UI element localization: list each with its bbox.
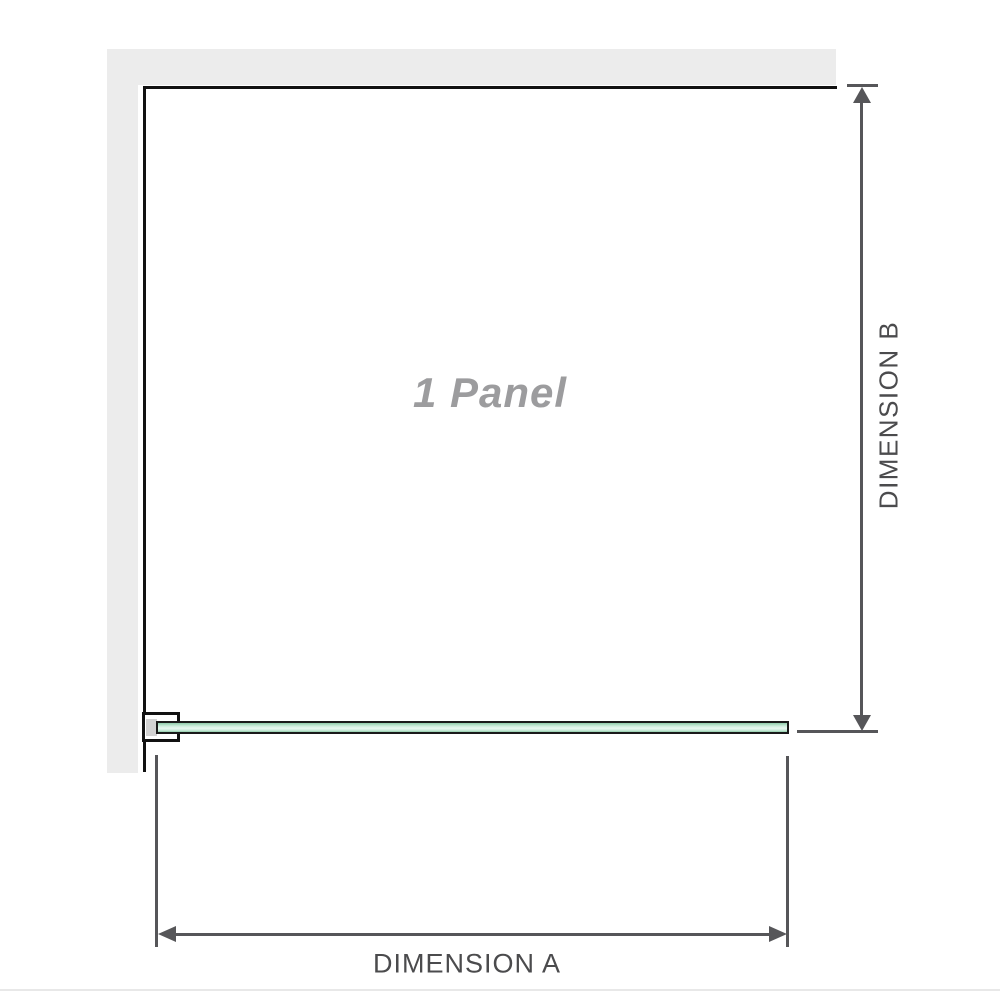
wall-segment-left — [107, 49, 138, 773]
panel-outline-left — [143, 86, 146, 772]
panel-label: 1 Panel — [143, 370, 837, 416]
dimension-a-extension-right — [786, 756, 789, 947]
baseline-divider — [0, 989, 1000, 991]
dimension-a-extension-left — [155, 755, 158, 947]
glass-panel — [156, 721, 789, 734]
dimension-a-label: DIMENSION A — [373, 949, 561, 980]
dimension-diagram: 1 Panel DIMENSION B DIMENSION A — [0, 0, 1000, 1000]
dimension-b-line — [860, 100, 863, 717]
dimension-b-tick-bottom — [797, 730, 878, 733]
dimension-b-label: DIMENSION B — [874, 321, 905, 509]
dimension-a-line — [174, 933, 771, 936]
wall-segment-top — [107, 49, 836, 85]
arrow-down-icon — [853, 715, 871, 731]
panel-outline-top — [143, 86, 837, 89]
arrow-right-icon — [769, 926, 787, 942]
